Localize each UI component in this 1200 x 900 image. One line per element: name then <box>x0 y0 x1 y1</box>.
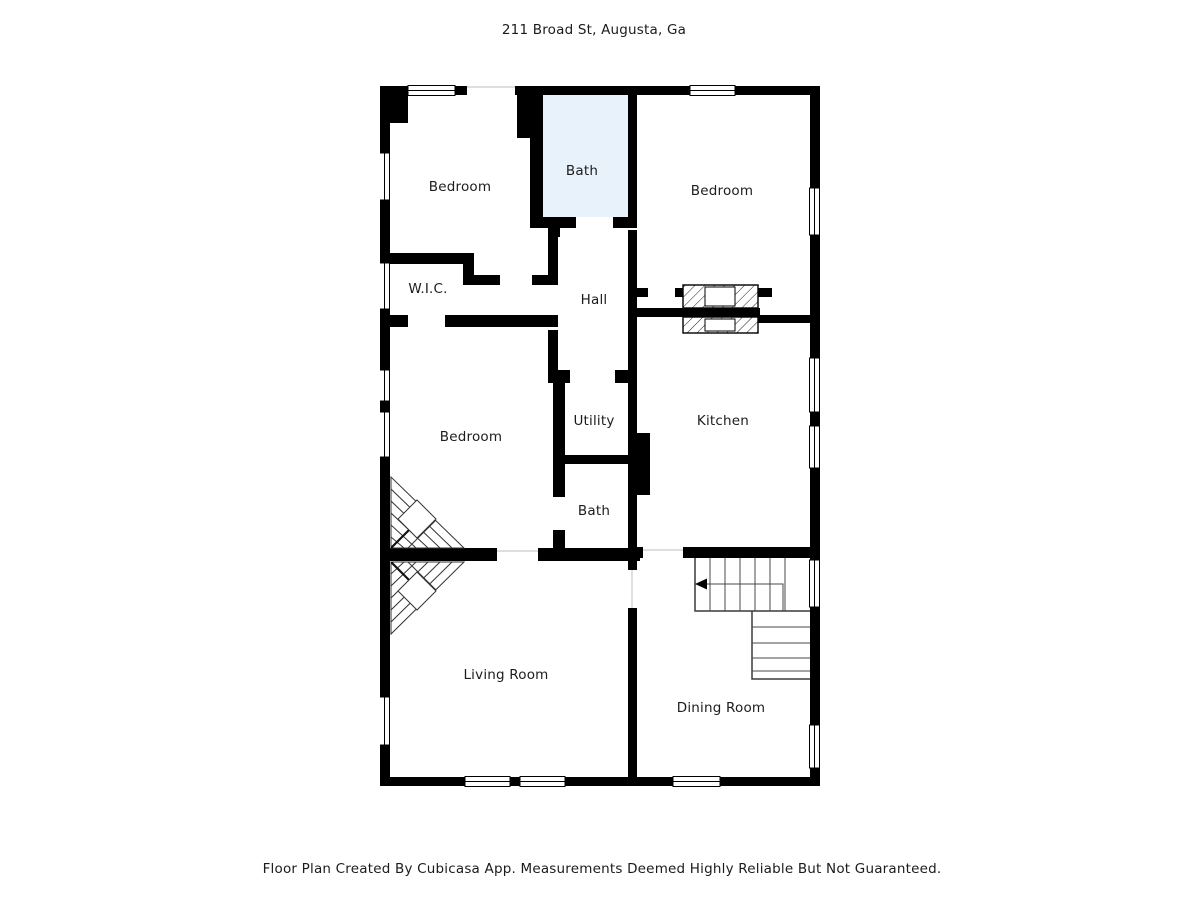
room-label-bath: Bath <box>566 163 598 179</box>
room-label-bedroom: Bedroom <box>440 429 502 445</box>
stair-rail-line <box>700 584 783 611</box>
room-label-utility: Utility <box>573 413 614 429</box>
room-label-bedroom: Bedroom <box>691 183 753 199</box>
stair-treads <box>710 558 810 671</box>
stairs-direction-arrow-icon <box>695 579 707 590</box>
room-label-kitchen: Kitchen <box>697 413 749 429</box>
staircase <box>695 558 810 679</box>
room-label-w-i-c-: W.I.C. <box>408 281 447 297</box>
page-title: 211 Broad St, Augusta, Ga <box>502 22 686 38</box>
disclaimer-text: Floor Plan Created By Cubicasa App. Meas… <box>263 861 942 877</box>
winder-stairs-upper <box>391 477 464 548</box>
winder-stairs-lower <box>391 562 464 634</box>
room-label-hall: Hall <box>581 292 608 308</box>
room-label-bath: Bath <box>578 503 610 519</box>
room-label-living-room: Living Room <box>463 667 548 683</box>
room-label-dining-room: Dining Room <box>677 700 766 716</box>
bath-floor-fill <box>543 95 628 217</box>
room-label-bedroom: Bedroom <box>429 179 491 195</box>
